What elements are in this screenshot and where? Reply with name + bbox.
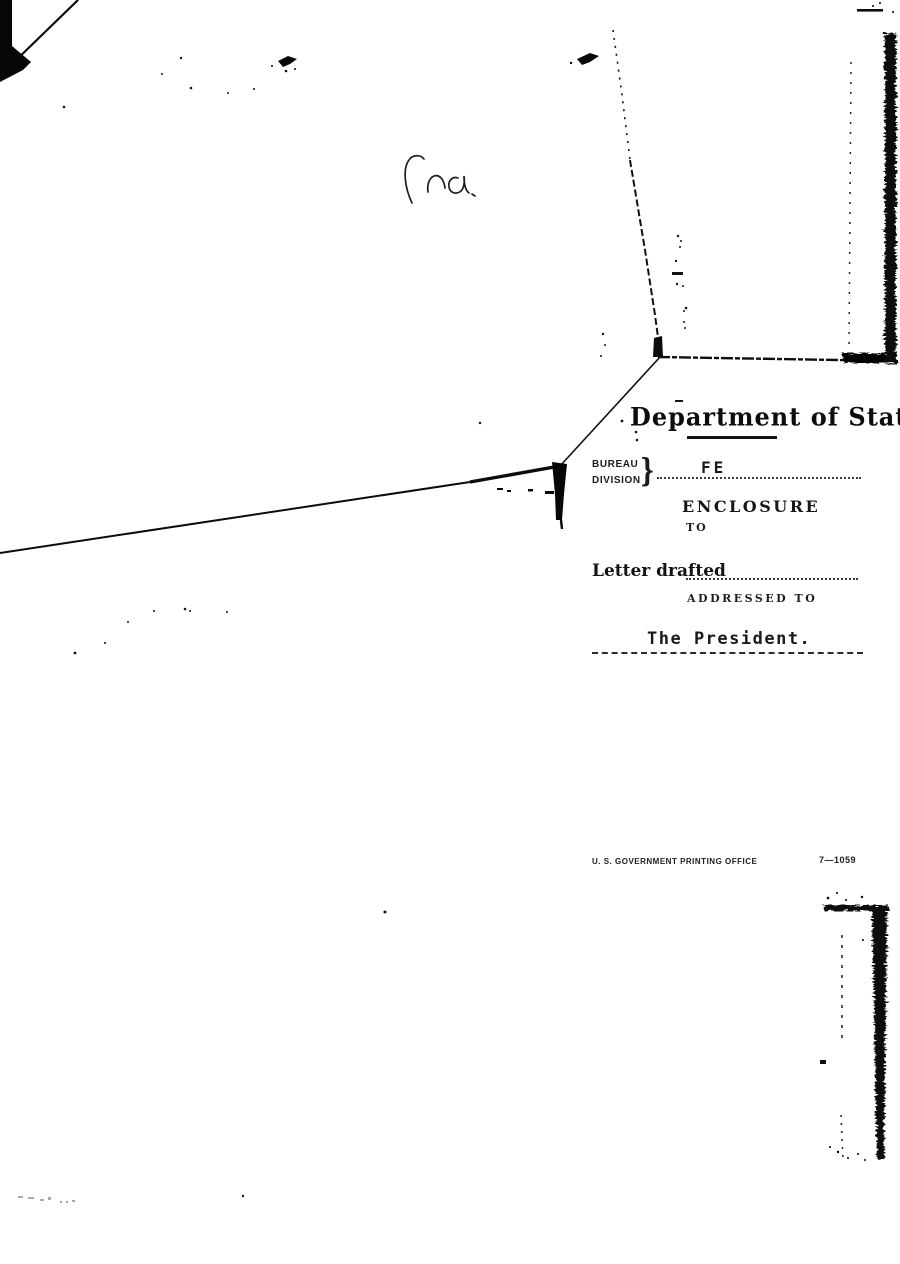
- scan-noise-band-bottom-right: [820, 892, 889, 1161]
- bureau-label: BUREAU: [592, 459, 638, 470]
- addressed-to-label: ADDRESSED TO: [687, 592, 817, 605]
- fold-line-shallow: [0, 466, 560, 553]
- scan-specks: [63, 57, 688, 1197]
- bureau-division-brace: }: [640, 454, 654, 486]
- fold-line-steep: [613, 30, 663, 357]
- letter-drafted-fill-line: [686, 578, 858, 580]
- division-label: DIVISION: [592, 475, 641, 486]
- department-title: Department of State: [630, 401, 900, 432]
- enclosure-to-label: TO: [686, 521, 708, 534]
- addressed-to-value: The President.: [647, 629, 811, 649]
- bureau-division-fill-line: [657, 477, 861, 479]
- scan-noise-band-right: [849, 2, 896, 363]
- form-number: 7—1059: [819, 855, 856, 865]
- fold-line-horizontal: [658, 353, 897, 363]
- printer-imprint: U. S. GOVERNMENT PRINTING OFFICE: [592, 857, 757, 866]
- checkmark-artifact: [271, 56, 297, 72]
- scanned-document-page: Department of State BUREAU DIVISION } FE…: [0, 0, 900, 1264]
- enclosure-label: ENCLOSURE: [682, 497, 820, 516]
- checkmark-artifact: [570, 53, 599, 65]
- faint-marks: [18, 1196, 75, 1203]
- handwritten-scribble: [405, 156, 475, 203]
- addressed-to-fill-line: [592, 652, 863, 654]
- corner-fold-artifact: [0, 0, 78, 82]
- title-underline: [687, 436, 777, 439]
- bureau-division-value: FE: [701, 458, 726, 477]
